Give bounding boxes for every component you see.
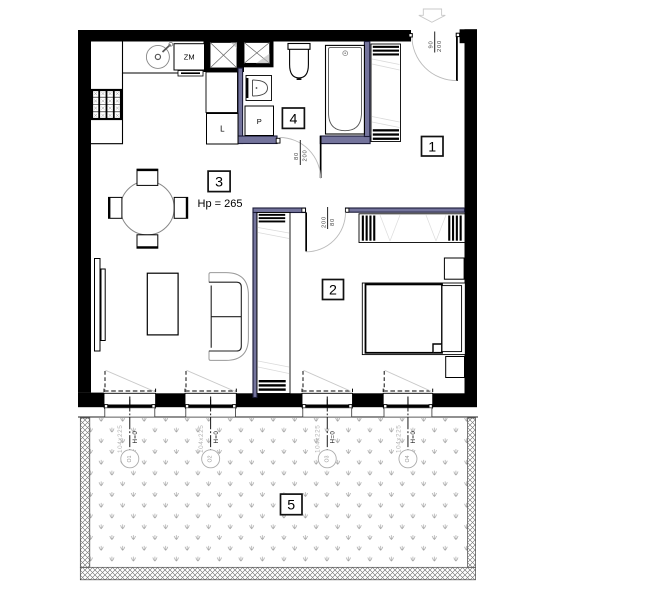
svg-text:1: 1 xyxy=(428,139,436,155)
svg-text:200: 200 xyxy=(303,150,309,162)
svg-text:5: 5 xyxy=(287,498,295,514)
svg-text:80: 80 xyxy=(294,152,300,160)
svg-text:90: 90 xyxy=(428,41,434,49)
svg-text:200: 200 xyxy=(437,40,443,52)
svg-text:O4: O4 xyxy=(405,455,411,462)
svg-text:H=0: H=0 xyxy=(410,431,417,444)
svg-text:ZM: ZM xyxy=(184,53,195,62)
svg-text:2: 2 xyxy=(329,283,337,299)
svg-text:H=0: H=0 xyxy=(329,431,336,444)
svg-text:H=0: H=0 xyxy=(132,431,139,444)
svg-text:80: 80 xyxy=(330,218,336,226)
svg-text:104x225: 104x225 xyxy=(198,425,205,453)
svg-text:P: P xyxy=(257,117,262,126)
svg-text:O3: O3 xyxy=(324,455,330,462)
svg-text:3: 3 xyxy=(215,174,223,190)
svg-text:104x225: 104x225 xyxy=(315,425,322,453)
svg-text:L: L xyxy=(220,125,225,134)
svg-text:H=0: H=0 xyxy=(213,431,220,444)
svg-text:200: 200 xyxy=(321,216,327,228)
svg-text:4: 4 xyxy=(289,111,297,127)
svg-text:O2: O2 xyxy=(208,455,214,462)
svg-text:104x225: 104x225 xyxy=(117,425,124,453)
svg-text:104x225: 104x225 xyxy=(395,425,402,453)
svg-text:Hp = 265: Hp = 265 xyxy=(198,198,243,210)
svg-text:O1: O1 xyxy=(127,455,133,462)
